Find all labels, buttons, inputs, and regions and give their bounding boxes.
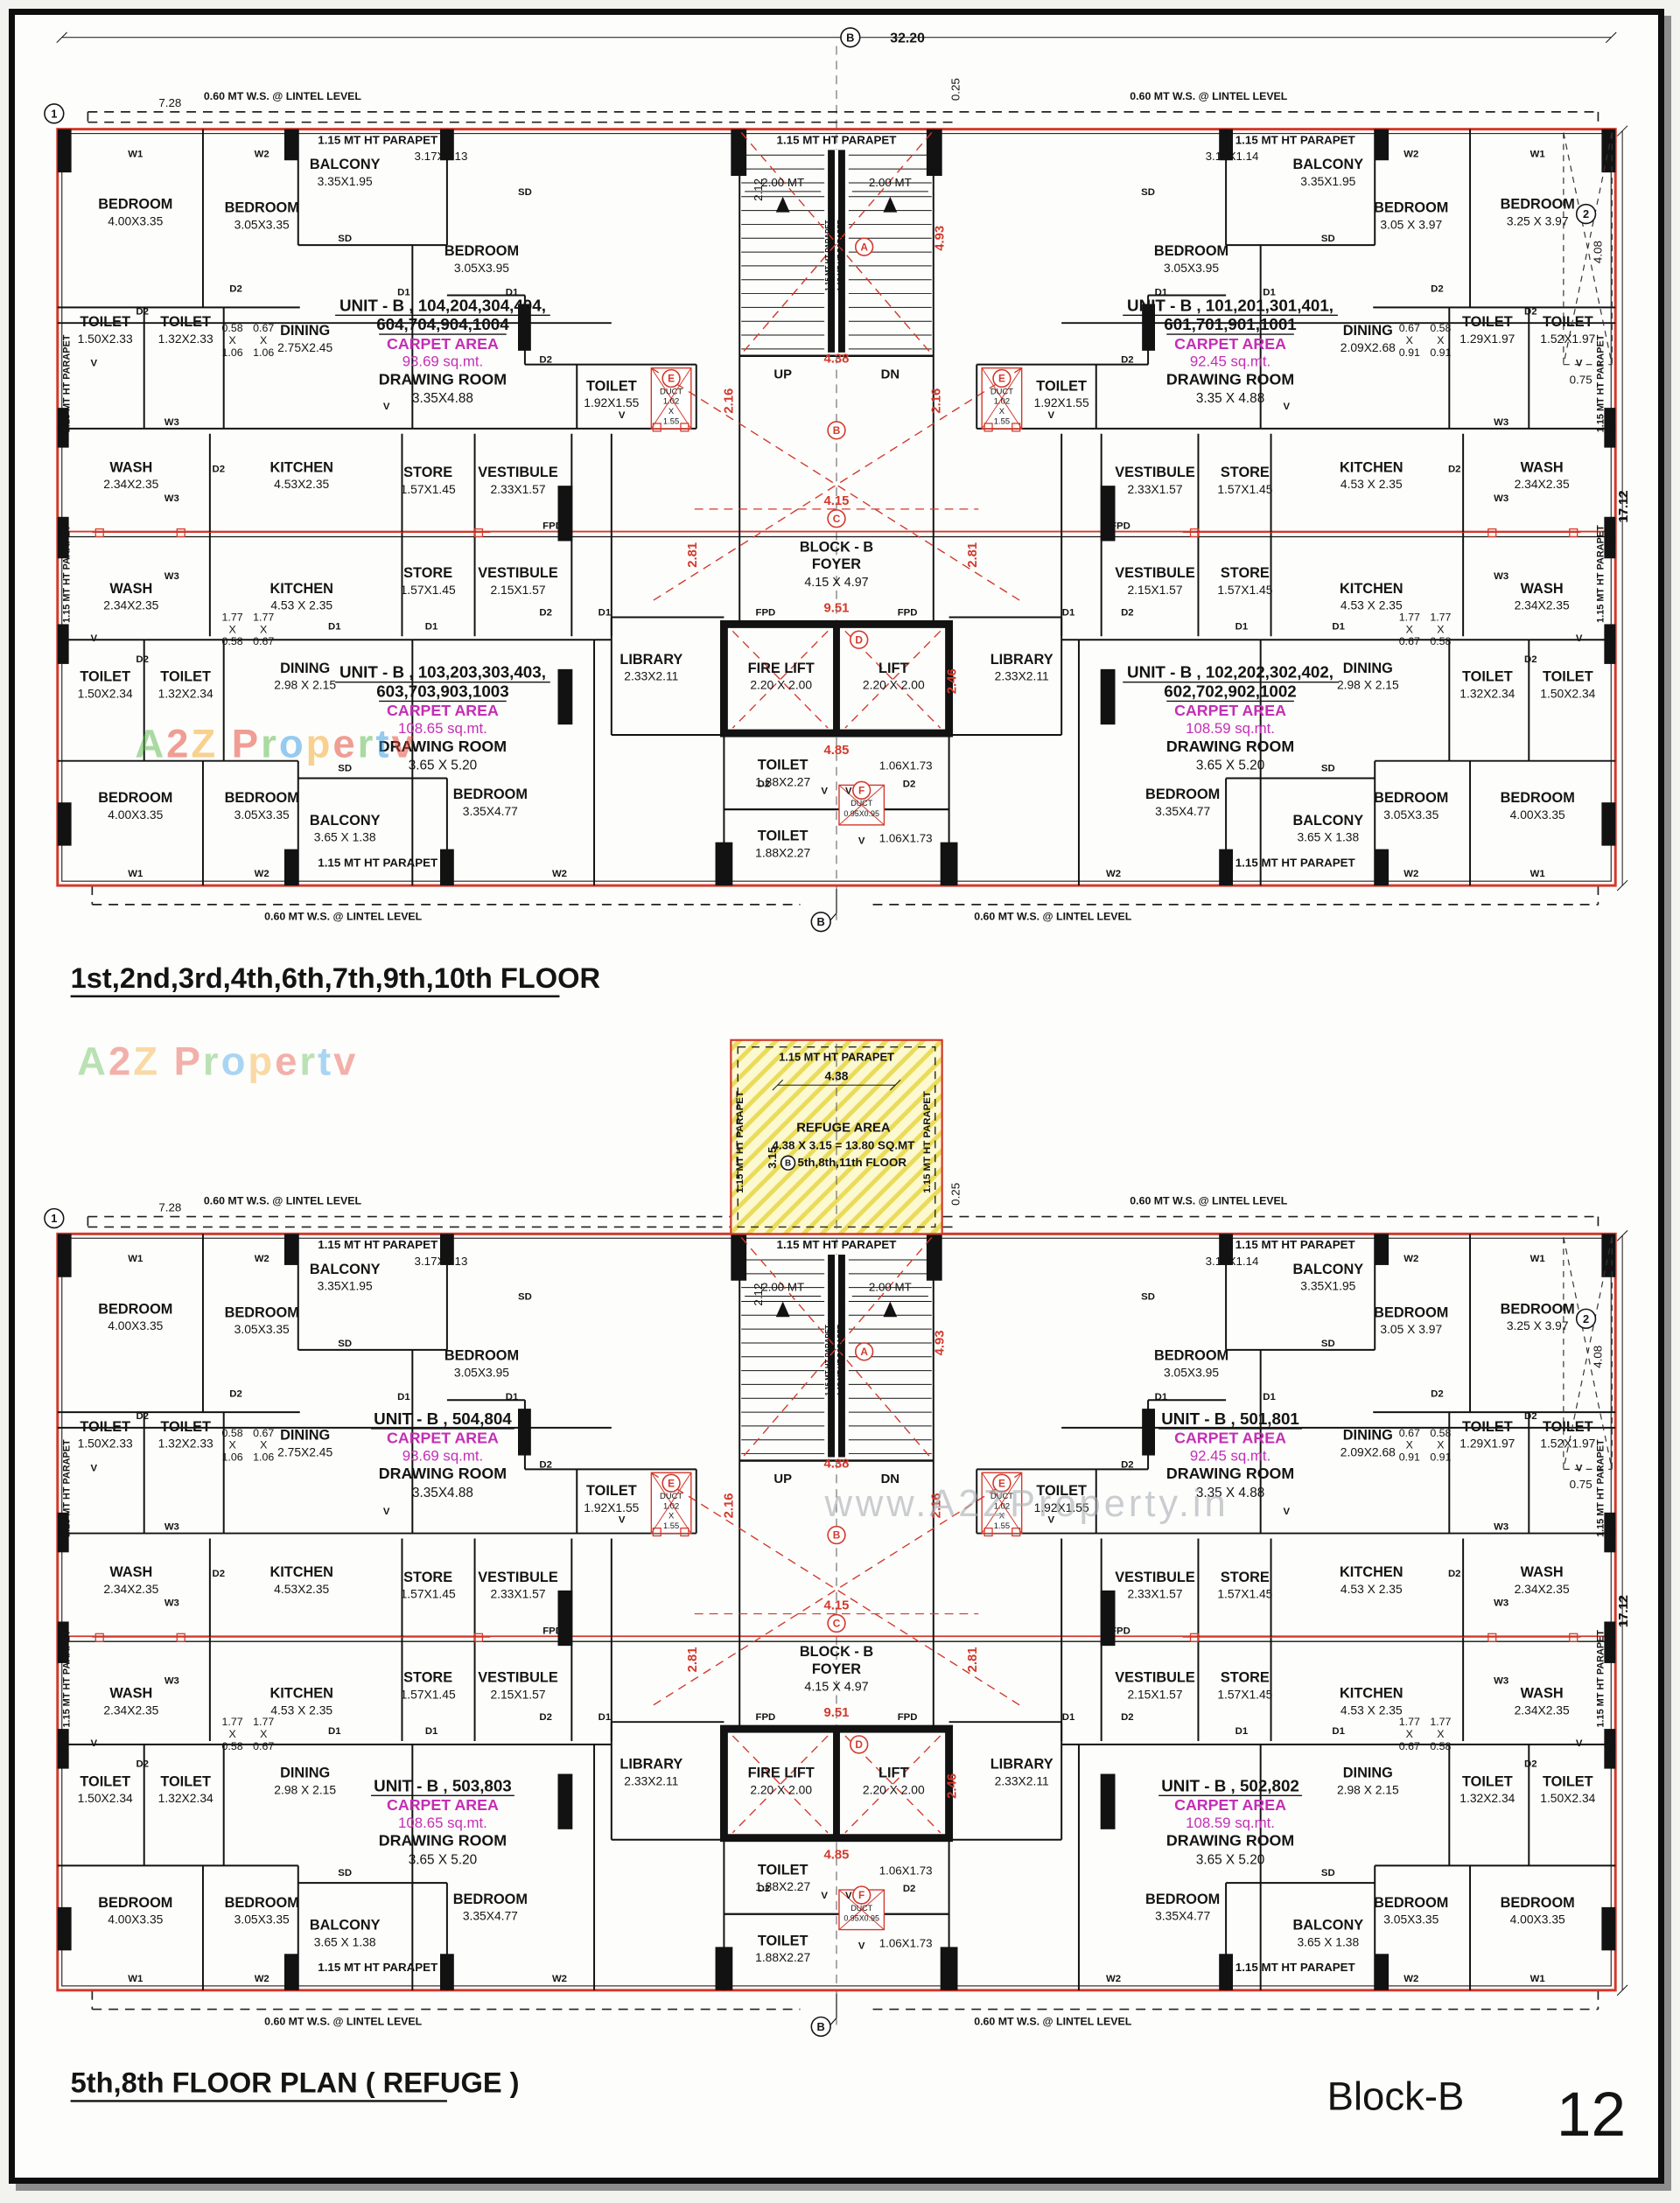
duct-label: 1.02 — [663, 396, 679, 406]
room-dim: 4.00X3.35 — [108, 1318, 163, 1332]
grid-marker-letter: E — [998, 373, 1005, 385]
unit-number-label: 602,702,902,1002 — [1164, 682, 1296, 701]
room-label: TOILET — [1462, 1418, 1513, 1434]
opening-tag: D1 — [1263, 1392, 1276, 1402]
unit-number-label: UNIT - B , 101,201,301,401, — [1127, 296, 1333, 314]
dimension: 0.58 — [222, 1426, 243, 1438]
parapet-label: 1.15 MT HT PARAPET — [1595, 1629, 1606, 1727]
room-label: TOILET — [1462, 1773, 1513, 1789]
parapet-label: 1.15 MT HT PARAPET — [1595, 1438, 1606, 1536]
dimension: 0.67 — [253, 1426, 274, 1438]
red-dimension: 2.16 — [722, 388, 736, 414]
column — [440, 850, 454, 886]
room-dim: 2.34X2.35 — [103, 598, 158, 612]
opening-tag: V — [1576, 1463, 1583, 1473]
room-label: STORE — [403, 465, 452, 480]
opening-tag: D2 — [1431, 284, 1444, 295]
room-dim: 3.05X3.95 — [454, 261, 509, 275]
opening-tag: W3 — [164, 1598, 179, 1608]
foyer-label: BLOCK - B — [800, 1644, 873, 1660]
column — [58, 624, 69, 664]
parapet-label: 1.15 MT HT PARAPET — [735, 1091, 745, 1193]
room-label: TOILET — [80, 314, 130, 330]
parapet-label: 1.15 MT HT PARAPET — [1235, 856, 1355, 869]
room-label: BEDROOM — [225, 1894, 299, 1910]
opening-tag: V — [1576, 359, 1583, 369]
grid-marker-letter: 2 — [1583, 207, 1589, 220]
column — [284, 850, 298, 886]
room-label: TOILET — [160, 314, 211, 330]
carpet-area-label: CARPET AREA — [1174, 335, 1286, 353]
parapet-label: 1.15 MT HT PARAPET — [1595, 334, 1606, 432]
opening-tag: D1 — [1235, 1726, 1249, 1737]
room-label: KITCHEN — [1340, 1685, 1403, 1701]
room-label: STORE — [1221, 565, 1270, 581]
room-label: WASH — [109, 1685, 152, 1701]
room-dim: 2.20 X 2.00 — [750, 1782, 812, 1796]
opening-tag: SD — [338, 234, 352, 244]
room-label: STORE — [1221, 1569, 1270, 1584]
room-label: TOILET — [160, 669, 211, 685]
room-dim: 3.35X4.77 — [463, 804, 518, 818]
opening-tag: W2 — [1403, 1973, 1418, 1983]
column — [941, 843, 958, 885]
room-label: DRAWING ROOM — [1166, 738, 1294, 755]
parapet-label: 1.15 MT HT PARAPET — [824, 1325, 832, 1395]
room-label: BEDROOM — [98, 197, 172, 213]
room-label: VESTIBULE — [1115, 1669, 1195, 1685]
watermark-logo: A2Z Propertv — [77, 1039, 358, 1083]
room-dim: 1.50X2.34 — [78, 1791, 133, 1805]
lintel-label: 0.60 MT W.S. @ LINTEL LEVEL — [1130, 1194, 1288, 1206]
room-label: BEDROOM — [1501, 790, 1575, 806]
room-dim: 3.35X4.88 — [412, 1486, 473, 1500]
opening-tag: W3 — [1494, 1521, 1508, 1532]
dimension: X — [1437, 334, 1444, 346]
unit-number-label: UNIT - B , 503,803 — [374, 1776, 512, 1794]
opening-tag: D2 — [903, 1884, 916, 1894]
room-dim: 1.32X2.33 — [158, 1436, 213, 1450]
opening-tag: D1 — [328, 621, 341, 632]
column — [1101, 486, 1116, 541]
opening-tag: D2 — [1121, 608, 1134, 619]
opening-tag: D2 — [539, 1712, 552, 1723]
parapet-label: 1.15 MT HT PARAPET — [318, 133, 437, 146]
opening-tag: SD — [1321, 1868, 1335, 1878]
room-dim: 3.25 X 3.97 — [1507, 213, 1569, 227]
room-dim: 3.05X3.35 — [234, 1322, 290, 1336]
room-dim: 1.50X2.34 — [1540, 1791, 1595, 1805]
opening-tag: D1 — [598, 1712, 612, 1723]
dimension: 0.67 — [1399, 1426, 1420, 1438]
watermark-logo: A2Z Propertv — [135, 722, 416, 766]
room-dim: 1.52X1.97 — [1540, 332, 1595, 346]
grid-marker-letter: 1 — [51, 1212, 57, 1225]
dimension: X — [260, 1727, 267, 1739]
room-dim: 3.25 X 3.97 — [1507, 1318, 1569, 1332]
dimension: 1.06 — [253, 1451, 274, 1463]
room-label: DINING — [1343, 323, 1393, 339]
opening-tag: W3 — [164, 571, 179, 582]
opening-tag: D2 — [1448, 1569, 1461, 1579]
room-dim: 1.32X2.34 — [1459, 1791, 1515, 1805]
carpet-area-value: 93.69 sq.mt. — [402, 353, 483, 370]
room-label: BEDROOM — [1154, 243, 1228, 259]
room-label: DINING — [280, 1427, 330, 1443]
opening-tag: W2 — [255, 1973, 269, 1983]
opening-tag: D2 — [136, 654, 149, 665]
room-dim: 3.35X4.77 — [1155, 1908, 1210, 1922]
room-label: VESTIBULE — [478, 1569, 558, 1584]
opening-tag: W1 — [1530, 1973, 1545, 1983]
room-label: BEDROOM — [98, 1301, 172, 1317]
dimension: 1.77 — [1430, 1716, 1451, 1728]
room-dim: 2.34X2.35 — [1515, 477, 1570, 491]
opening-tag: FPD — [542, 1626, 563, 1636]
overall-dimension: 17.12 — [1617, 1595, 1631, 1627]
dimension: X — [228, 334, 235, 346]
room-dim: 3.65 X 1.38 — [1297, 1934, 1359, 1948]
room-label: BALCONY — [310, 813, 381, 829]
room-dim: 2.34X2.35 — [1515, 1581, 1570, 1595]
dimension: 0.75 — [1570, 1478, 1592, 1491]
opening-tag: SD — [1141, 187, 1155, 198]
dimension: 0.91 — [1399, 1451, 1420, 1463]
opening-tag: SD — [1321, 1338, 1335, 1348]
stair-arrow — [883, 1301, 897, 1317]
opening-tag: W2 — [552, 869, 567, 879]
opening-tag: D1 — [425, 1726, 438, 1737]
red-dimension: 2.16 — [930, 388, 944, 414]
stair-arrow — [776, 1301, 790, 1317]
parapet-label: 1.15 MT HT PARAPET — [1595, 525, 1606, 623]
dimension: 1.06X1.73 — [879, 759, 933, 773]
room-label: DRAWING ROOM — [379, 1465, 507, 1482]
room-label: BEDROOM — [1154, 1347, 1228, 1363]
opening-tag: SD — [338, 1868, 352, 1878]
window-mark — [1570, 529, 1578, 537]
unit-number-label: UNIT - B , 502,802 — [1161, 1776, 1299, 1794]
room-label: BALCONY — [1292, 1261, 1363, 1276]
room-dim: 1.52X1.97 — [1540, 1436, 1595, 1450]
room-dim: 1.50X2.33 — [78, 332, 133, 346]
column — [1601, 129, 1615, 172]
room-dim: 1.50X2.34 — [78, 686, 133, 700]
dimension: X — [260, 1438, 267, 1451]
stair-arrow — [883, 197, 897, 213]
column — [1101, 1590, 1116, 1645]
opening-tag: V — [619, 410, 626, 421]
room-label: BALCONY — [1292, 813, 1363, 829]
column — [558, 669, 573, 724]
room-label: BEDROOM — [98, 790, 172, 806]
room-label: VESTIBULE — [478, 1669, 558, 1685]
parapet-label: 1.15 MT HT PARAPET — [318, 856, 437, 869]
opening-tag: D2 — [136, 1759, 149, 1769]
room-dim: 4.53 X 2.35 — [1340, 477, 1403, 491]
column — [58, 802, 72, 845]
opening-tag: SD — [518, 1291, 532, 1302]
room-dim: 1.92X1.55 — [584, 1500, 639, 1514]
opening-tag: FPD — [1110, 521, 1130, 532]
dimension: 0.91 — [1430, 346, 1451, 359]
dimension: 1.06 — [222, 1451, 243, 1463]
room-label: DINING — [280, 323, 330, 339]
dimension: 0.67 — [253, 1739, 274, 1752]
grid-marker-letter: 2 — [1583, 1311, 1589, 1325]
dimension: 2.00 MT — [761, 1280, 804, 1293]
wall-line — [830, 913, 836, 920]
opening-tag: D1 — [1332, 621, 1345, 632]
room-label: WASH — [1521, 581, 1564, 597]
grid-marker-letter: A — [860, 1345, 868, 1357]
dimension: 3.17X1.14 — [1206, 150, 1259, 163]
opening-tag: V — [1048, 410, 1055, 421]
dimension: X — [1437, 1727, 1444, 1739]
room-dim: 1.92X1.55 — [1034, 395, 1089, 409]
carpet-area-value: 92.45 sq.mt. — [1190, 1447, 1270, 1464]
room-label: DRAWING ROOM — [379, 1831, 507, 1849]
dimension: 0.58 — [222, 1739, 243, 1752]
room-label: LIBRARY — [619, 652, 682, 668]
room-dim: 3.05X3.35 — [234, 1912, 290, 1926]
room-dim: 2.34X2.35 — [103, 1703, 158, 1717]
parapet-label: 1.15 MT HT PARAPET — [779, 1050, 894, 1063]
dimension: X — [1406, 623, 1413, 635]
parapet-label: 1.15 MT HT PARAPET — [62, 1629, 73, 1727]
dimension: 4.38 — [825, 1068, 849, 1082]
dimension: 4.08 — [1591, 1345, 1604, 1367]
room-label: KITCHEN — [269, 581, 332, 597]
duct-label: DUCT — [850, 799, 872, 808]
parapet-label: 1.15 MT HT PARAPET — [1235, 1961, 1355, 1974]
duct-label: X — [999, 406, 1005, 416]
room-dim: 2.33X1.57 — [490, 482, 545, 496]
room-label: KITCHEN — [1340, 459, 1403, 475]
column — [941, 1947, 958, 1990]
parapet-label: 1.15 MT HT PARAPET — [318, 1238, 437, 1251]
dimension: 0.58 — [1430, 635, 1451, 647]
dimension: 1.06 — [253, 346, 274, 359]
dimension: 1.06 — [222, 346, 243, 359]
column — [518, 1409, 531, 1455]
room-label: BEDROOM — [225, 790, 299, 806]
dimension: X — [228, 1438, 235, 1451]
room-label: BEDROOM — [453, 787, 528, 802]
room-dim: 2.33X1.57 — [1127, 1586, 1182, 1600]
room-dim: 1.92X1.55 — [584, 395, 639, 409]
column — [284, 129, 298, 161]
room-dim: 2.15X1.57 — [1127, 583, 1182, 597]
opening-tag: FPD — [898, 1712, 918, 1723]
carpet-area-label: CARPET AREA — [387, 1429, 499, 1446]
dimension: 0.67 — [253, 635, 274, 647]
room-label: KITCHEN — [269, 1564, 333, 1580]
room-label: DINING — [280, 661, 330, 676]
room-dim: 1.88X2.27 — [755, 845, 810, 859]
opening-tag: D1 — [1155, 1392, 1168, 1402]
room-dim: 3.05X3.95 — [1164, 261, 1219, 275]
foyer-label: BLOCK - B — [800, 539, 873, 555]
room-dim: 3.05X3.95 — [1164, 1365, 1219, 1379]
carpet-area-value: 93.69 sq.mt. — [402, 1447, 483, 1464]
dimension: 2.00 MT — [761, 176, 804, 189]
room-label: LIBRARY — [990, 1756, 1053, 1772]
opening-tag: W2 — [255, 149, 269, 159]
carpet-area-label: CARPET AREA — [1174, 1429, 1286, 1446]
dimension: 1.77 — [222, 1716, 243, 1728]
dimension: 1.06X1.73 — [879, 832, 933, 845]
room-label: LIFT — [878, 661, 908, 676]
room-dim: 2.15X1.57 — [490, 583, 545, 597]
room-dim: 2.34X2.35 — [1515, 598, 1570, 612]
room-dim: 4.53 X 2.35 — [1340, 1581, 1403, 1595]
room-label: BEDROOM — [225, 200, 299, 216]
room-label: LIBRARY — [990, 652, 1053, 668]
opening-tag: D1 — [1062, 608, 1075, 619]
room-label: FIRE LIFT — [748, 661, 815, 676]
opening-tag: W2 — [255, 1253, 269, 1263]
opening-tag: D2 — [1431, 1388, 1444, 1399]
room-dim: 2.98 X 2.15 — [1337, 1782, 1399, 1796]
column — [440, 1954, 454, 1990]
dimension: X — [260, 623, 267, 635]
room-dim: 2.98 X 2.15 — [1337, 678, 1399, 692]
column — [58, 1729, 69, 1768]
dimension: 1.77 — [253, 1716, 274, 1728]
room-dim: 2.09X2.68 — [1340, 1444, 1396, 1458]
room-dim: 4.00X3.35 — [1510, 1912, 1565, 1926]
room-dim: 1.57X1.45 — [1217, 1586, 1272, 1600]
opening-tag: W2 — [1403, 869, 1418, 879]
column — [558, 1590, 573, 1645]
room-label: LIBRARY — [619, 1756, 682, 1772]
foyer-label: FOYER — [812, 1661, 861, 1676]
dimension: X — [1437, 623, 1444, 635]
room-label: TOILET — [80, 1773, 130, 1789]
room-dim: 3.65 X 5.20 — [1196, 1852, 1264, 1867]
window-mark — [1488, 529, 1496, 537]
red-dimension: 4.38 — [824, 353, 850, 367]
room-dim: 2.34X2.35 — [1515, 1703, 1570, 1717]
window-mark — [95, 529, 103, 537]
dimension: 0.91 — [1399, 346, 1420, 359]
room-label: BEDROOM — [1374, 1304, 1448, 1320]
dimension: 0.91 — [1430, 1451, 1451, 1463]
grid-marker-letter: E — [668, 1477, 675, 1489]
lintel-label: 0.60 MT W.S. @ LINTEL LEVEL — [1130, 90, 1288, 102]
red-dimension: 2.81 — [686, 1647, 700, 1672]
room-label: TOILET — [1462, 669, 1513, 685]
opening-tag: D2 — [229, 284, 242, 295]
room-dim: 4.53X2.35 — [274, 477, 329, 491]
room-label: BALCONY — [1292, 1917, 1363, 1933]
column — [58, 1906, 72, 1949]
opening-tag: W3 — [164, 417, 179, 428]
opening-tag: V — [821, 1890, 828, 1900]
red-dimension: 2.81 — [966, 1647, 980, 1672]
room-dim: 3.05X3.35 — [234, 217, 290, 231]
opening-tag: W2 — [1106, 1973, 1121, 1983]
opening-tag: FPD — [898, 608, 918, 619]
room-dim: 2.98 X 2.15 — [274, 1782, 336, 1796]
room-dim: 2.34X2.35 — [103, 477, 158, 491]
opening-tag: D1 — [1062, 1712, 1075, 1723]
column — [1601, 802, 1615, 845]
room-label: KITCHEN — [269, 1685, 333, 1701]
foyer-dim: 4.15 X 4.97 — [804, 1680, 868, 1694]
opening-tag: W3 — [164, 1521, 179, 1532]
room-label: BEDROOM — [1501, 197, 1575, 213]
opening-tag: D2 — [213, 1569, 226, 1579]
room-label: WASH — [109, 1564, 152, 1580]
room-label: VESTIBULE — [478, 465, 558, 480]
duct-label: X — [668, 406, 675, 416]
room-dim: 3.65 X 5.20 — [1196, 759, 1264, 773]
opening-tag: D2 — [136, 306, 149, 317]
duct-label: 1.02 — [994, 396, 1010, 406]
opening-tag: D1 — [397, 1392, 410, 1402]
duct-label: 1.02 — [663, 1500, 679, 1510]
room-dim: 1.29X1.97 — [1459, 332, 1515, 346]
room-dim: 2.09X2.68 — [1340, 340, 1396, 354]
room-label: DRAWING ROOM — [1166, 1831, 1294, 1849]
opening-tag: FPD — [756, 608, 776, 619]
room-label: WASH — [1521, 1685, 1564, 1701]
dimension: 0.58 — [222, 635, 243, 647]
room-label: LIFT — [878, 1765, 908, 1780]
room-dim: 3.65 X 1.38 — [314, 1934, 376, 1948]
column — [1375, 1954, 1389, 1990]
room-dim: 1.57X1.45 — [1217, 1687, 1272, 1701]
opening-tag: D2 — [1121, 1712, 1134, 1723]
room-label: DINING — [1343, 1765, 1393, 1780]
room-label: TOILET — [758, 829, 808, 844]
opening-tag: W2 — [1403, 149, 1418, 159]
plan-title: 5th,8th FLOOR PLAN ( REFUGE ) — [71, 2066, 520, 2098]
opening-tag: D2 — [1121, 1459, 1134, 1470]
opening-tag: W1 — [1530, 149, 1545, 159]
red-dimension: 4.93 — [934, 226, 948, 251]
room-dim: 4.53 X 2.35 — [270, 1703, 332, 1717]
room-dim: 1.57X1.45 — [401, 1687, 456, 1701]
column — [1601, 1234, 1615, 1276]
room-dim: 2.20 X 2.00 — [750, 678, 812, 692]
dimension: 1.77 — [253, 611, 274, 623]
room-dim: 3.65 X 5.20 — [409, 1852, 477, 1867]
room-dim: 3.05 X 3.97 — [1380, 1322, 1442, 1336]
opening-tag: V — [858, 836, 865, 847]
parapet-label: 1.15 MT HT PARAPET — [836, 220, 844, 290]
room-label: STORE — [1221, 465, 1270, 480]
room-label: TOILET — [586, 378, 637, 394]
room-dim: 3.35X1.95 — [1300, 174, 1355, 188]
carpet-area-label: CARPET AREA — [387, 335, 499, 353]
opening-tag: D2 — [1524, 654, 1537, 665]
column — [1375, 1234, 1389, 1265]
room-dim: 2.20 X 2.00 — [863, 1782, 925, 1796]
grid-marker-letter: F — [858, 1889, 864, 1901]
duct-label: 1.55 — [994, 416, 1010, 425]
carpet-area-label: CARPET AREA — [387, 1796, 499, 1814]
room-dim: 3.35X1.95 — [318, 174, 373, 188]
opening-tag: DN — [881, 367, 899, 381]
dimension: 0.25 — [948, 1182, 962, 1205]
room-dim: 2.75X2.45 — [277, 340, 332, 354]
room-label: BEDROOM — [1374, 790, 1448, 806]
dimension: X — [228, 623, 235, 635]
opening-tag: V — [858, 1941, 865, 1951]
